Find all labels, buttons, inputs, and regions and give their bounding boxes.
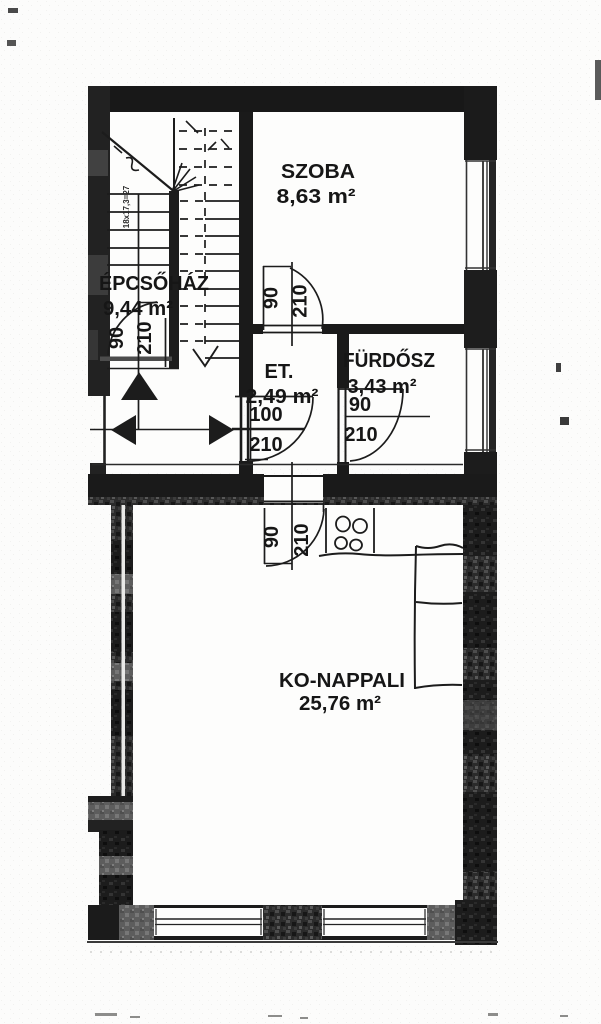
svg-text:90: 90 (106, 327, 128, 349)
svg-text:2,49 m²: 2,49 m² (246, 386, 319, 408)
svg-text:FÜRDŐSZ: FÜRDŐSZ (343, 349, 435, 372)
svg-text:18x17,3=27: 18x17,3=27 (122, 185, 131, 228)
svg-text:8,63 m²: 8,63 m² (277, 186, 356, 208)
svg-text:210: 210 (291, 523, 313, 556)
svg-text:25,76 m²: 25,76 m² (299, 693, 381, 715)
svg-text:210: 210 (249, 434, 282, 456)
svg-text:KO-NAPPALI: KO-NAPPALI (279, 670, 405, 692)
svg-text:SZOBA: SZOBA (281, 161, 355, 183)
svg-text:210: 210 (134, 321, 156, 354)
svg-text:3,43 m²: 3,43 m² (348, 376, 417, 398)
svg-text:210: 210 (290, 284, 312, 317)
svg-text:90: 90 (261, 526, 283, 548)
svg-text:210: 210 (344, 424, 377, 446)
svg-text:90: 90 (261, 287, 283, 309)
svg-text:ÉPCSŐHÁZ: ÉPCSŐHÁZ (99, 272, 209, 295)
svg-text:9,44 m²: 9,44 m² (103, 298, 173, 320)
svg-text:ET.: ET. (265, 361, 294, 383)
